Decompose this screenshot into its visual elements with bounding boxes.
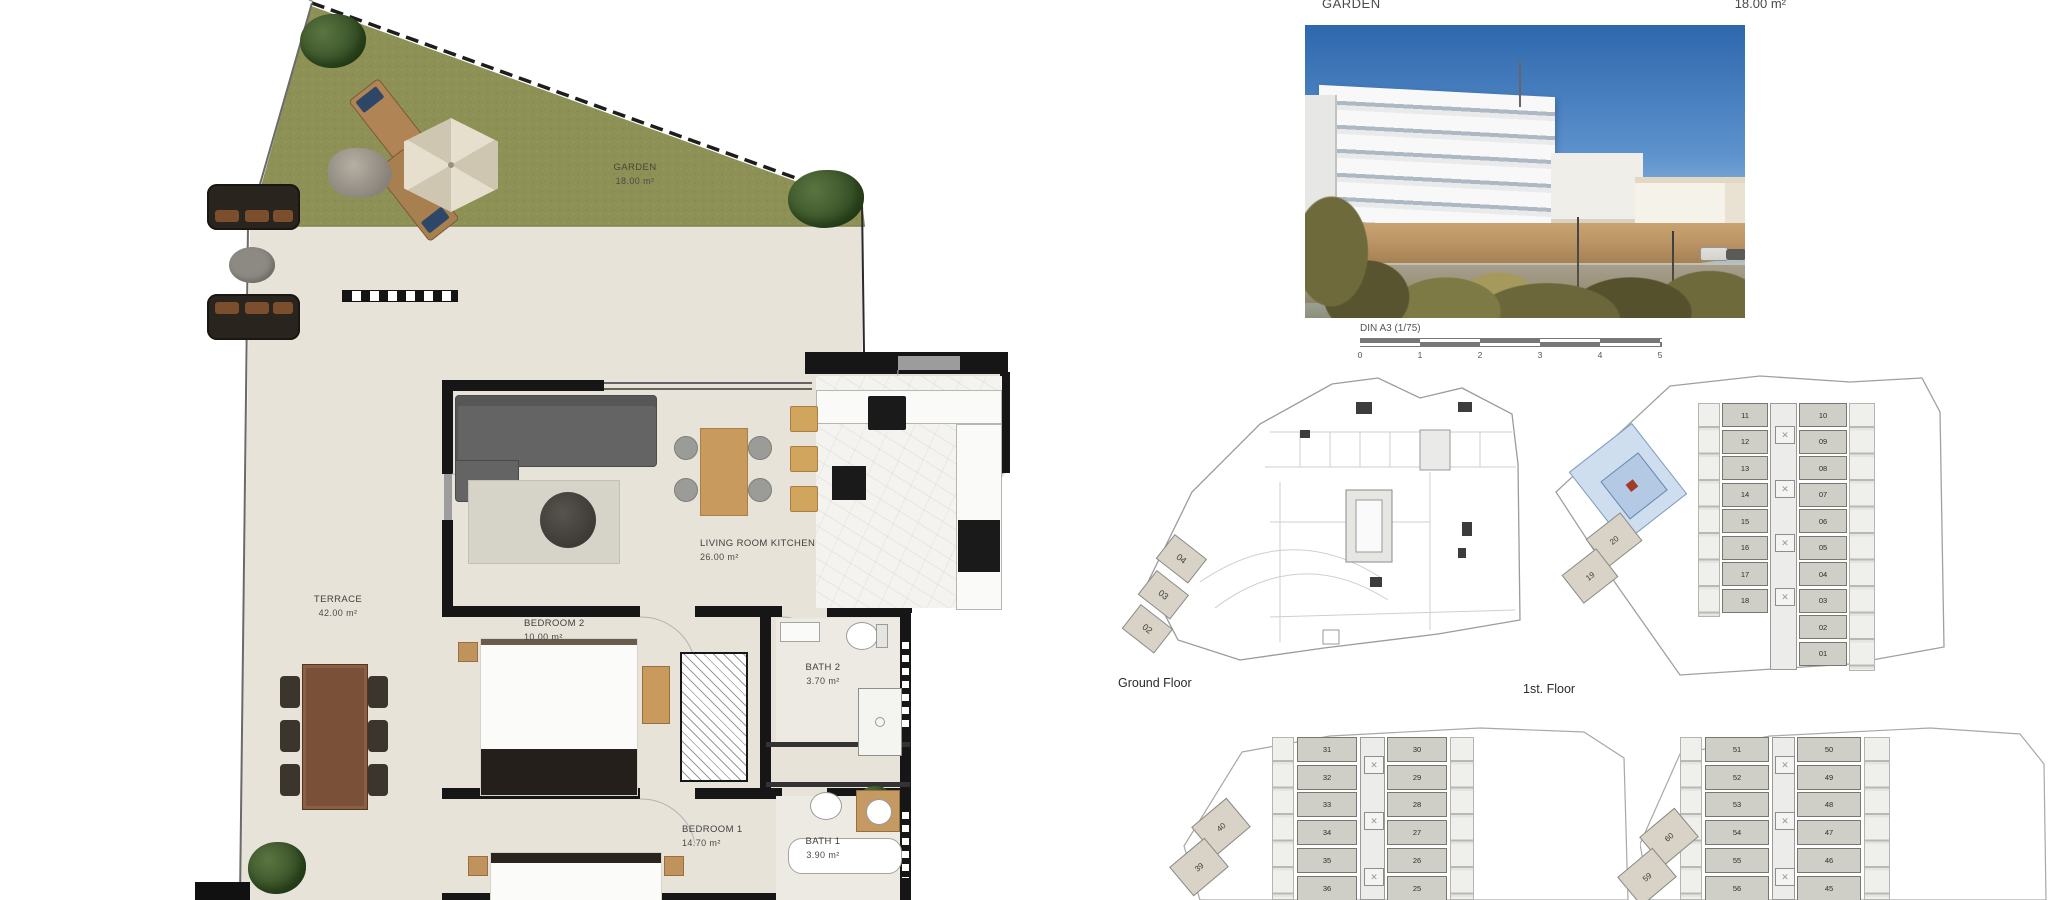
bar-stool [790, 406, 818, 432]
dining-chair [748, 478, 772, 502]
terrace-sofa-bottom [207, 294, 300, 340]
unit-cell: 53 [1705, 792, 1769, 817]
rock-icon [328, 148, 392, 198]
unit-cell: 52 [1705, 765, 1769, 790]
bar-stool [790, 486, 818, 512]
unit-cell: 35 [1297, 848, 1357, 873]
bedroom1-label: BEDROOM 114.70 m² [682, 824, 762, 849]
unit-cell: 54 [1705, 820, 1769, 845]
unit-cell: 08 [1799, 456, 1847, 480]
living-sofa [455, 395, 657, 467]
unit-cell: 29 [1387, 765, 1447, 790]
terrace-chair [368, 764, 388, 796]
unit-cell: 50 [1797, 737, 1861, 762]
scalebar: DIN A3 (1/75) 012345 [1360, 323, 1680, 365]
unit-cell: 46 [1797, 848, 1861, 873]
unit-cell: 10 [1799, 403, 1847, 427]
toilet-icon [846, 622, 878, 650]
unit-cell: 55 [1705, 848, 1769, 873]
kitchen-island-stove [832, 466, 866, 500]
toilet-icon [810, 792, 842, 820]
nightstand [458, 642, 478, 662]
unit-cell: 02 [1799, 615, 1847, 639]
bath1-label: BATH 13.90 m² [800, 836, 846, 861]
terrace-chair [368, 676, 388, 708]
dining-chair [748, 436, 772, 460]
ground-floor-plan: 04 03 02 [1120, 372, 1535, 677]
dining-chair [674, 478, 698, 502]
unit-cell: 05 [1799, 536, 1847, 560]
unit-cell: 30 [1387, 737, 1447, 762]
scalebar-tick: 2 [1478, 350, 1483, 360]
unit-cell: 14 [1722, 483, 1768, 507]
unit-cell: 07 [1799, 483, 1847, 507]
terrace-chair [280, 676, 300, 708]
nightstand [664, 856, 684, 876]
terrace-sofa-top [207, 184, 300, 230]
unit-cell: 32 [1297, 765, 1357, 790]
dining-table [700, 428, 748, 516]
photo-vegetation [1305, 143, 1745, 318]
unit-cell: 11 [1722, 403, 1768, 427]
floor-plan-sheet: GARDEN18.00 m² TERRACE42.00 m² LIVING RO… [0, 0, 2048, 900]
unit-cell: 48 [1797, 792, 1861, 817]
garden-label: GARDEN18.00 m² [580, 162, 690, 187]
balcony-strip [1698, 403, 1720, 617]
unit-cell: 51 [1705, 737, 1769, 762]
second-floor-core: ✕ ✕ ✕ [1360, 737, 1385, 900]
unit-cell: 27 [1387, 820, 1447, 845]
terrace-chair [280, 764, 300, 796]
scalebar-tick: 1 [1418, 350, 1423, 360]
terrace-ottoman [229, 247, 275, 283]
balcony-strip [1849, 403, 1875, 671]
unit-cell: 09 [1799, 430, 1847, 454]
area-table-value: 18.00 m² [1690, 0, 1786, 11]
balcony-strip [1864, 737, 1890, 900]
kitchen-cabinets [956, 424, 1002, 610]
elevator-icon: ✕ [1775, 756, 1795, 774]
unit-cell: 01 [1799, 642, 1847, 666]
kitchen-counter [816, 390, 1002, 424]
scalebar-tick: 5 [1658, 350, 1663, 360]
fridge-icon [958, 520, 1000, 572]
bedroom2-label: BEDROOM 210.00 m² [524, 618, 604, 643]
bath1-vanity [856, 790, 900, 832]
scalebar-tick: 3 [1538, 350, 1543, 360]
scalebar-tick: 0 [1358, 350, 1363, 360]
terrace-dining-table [302, 664, 368, 810]
elevator-icon: ✕ [1775, 868, 1795, 886]
terrace-chair [368, 720, 388, 752]
elevator-icon: ✕ [1775, 480, 1795, 498]
elevator-icon: ✕ [1775, 534, 1795, 552]
unit-cell: 31 [1297, 737, 1357, 762]
dresser [642, 666, 670, 724]
unit-cell: 12 [1722, 430, 1768, 454]
unit-cell: 06 [1799, 509, 1847, 533]
bar-stool [790, 446, 818, 472]
oven-icon [868, 396, 906, 430]
bath2-sink [780, 622, 820, 642]
unit-cell: 17 [1722, 562, 1768, 586]
nightstand [468, 856, 488, 876]
dining-chair [674, 436, 698, 460]
elevator-icon: ✕ [1364, 812, 1384, 830]
unit-cell: 34 [1297, 820, 1357, 845]
terrace-chair [280, 720, 300, 752]
unit-cell: 49 [1797, 765, 1861, 790]
ground-floor-label: Ground Floor [1118, 676, 1192, 690]
living-label: LIVING ROOM KITCHEN26.00 m² [700, 538, 830, 563]
unit-cell: 28 [1387, 792, 1447, 817]
shower-tray [858, 688, 902, 756]
building-photo [1305, 25, 1745, 318]
bath2-label: BATH 23.70 m² [800, 662, 846, 687]
toilet-tank [876, 624, 888, 648]
terrace-planter-wall [342, 290, 458, 302]
unit-cell: 16 [1722, 536, 1768, 560]
balcony-strip [1272, 737, 1294, 900]
scalebar-tick: 4 [1598, 350, 1603, 360]
elevator-icon: ✕ [1364, 868, 1384, 886]
area-table-room: GARDEN [1322, 0, 1381, 11]
unit-cell: 56 [1705, 876, 1769, 900]
wardrobe-hatched [680, 652, 748, 782]
terrace-label: TERRACE42.00 m² [288, 594, 388, 619]
photo-antenna [1519, 61, 1521, 107]
unit-cell: 13 [1722, 456, 1768, 480]
unit-cell: 26 [1387, 848, 1447, 873]
scalebar-ticks: 012345 [1360, 350, 1662, 362]
first-floor-core: ✕ ✕ ✕ ✕ [1770, 403, 1797, 670]
elevator-icon: ✕ [1775, 426, 1795, 444]
unit-cell: 04 [1799, 562, 1847, 586]
scalebar-label: DIN A3 (1/75) [1360, 323, 1421, 334]
bed-bedroom1 [490, 852, 662, 900]
unit-cell: 36 [1297, 876, 1357, 900]
unit-cell: 25 [1387, 876, 1447, 900]
elevator-icon: ✕ [1775, 588, 1795, 606]
third-floor-core: ✕ ✕ ✕ [1772, 737, 1795, 900]
unit-cell: 15 [1722, 509, 1768, 533]
unit-cell: 45 [1797, 876, 1861, 900]
unit-cell: 18 [1722, 589, 1768, 613]
elevator-icon: ✕ [1775, 812, 1795, 830]
unit-cell: 33 [1297, 792, 1357, 817]
balcony-strip [1450, 737, 1474, 900]
bed-bedroom2 [480, 638, 638, 796]
first-floor-label: 1st. Floor [1523, 682, 1575, 696]
scalebar-bar [1360, 338, 1662, 346]
coffee-table [540, 492, 596, 548]
elevator-icon: ✕ [1364, 756, 1384, 774]
unit-cell: 47 [1797, 820, 1861, 845]
unit-cell: 03 [1799, 589, 1847, 613]
